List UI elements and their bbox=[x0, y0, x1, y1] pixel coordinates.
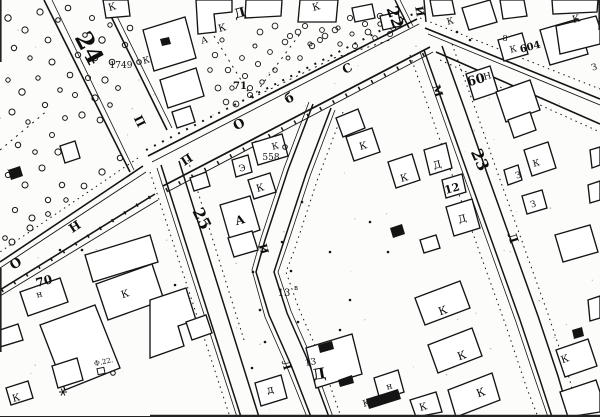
tree-dot-icon bbox=[339, 329, 342, 332]
tree-icon bbox=[22, 182, 28, 188]
map-label: П bbox=[131, 113, 149, 129]
tree-icon bbox=[39, 165, 45, 171]
speckle-dot bbox=[516, 211, 517, 212]
building-outline bbox=[588, 181, 600, 203]
tree-dot-icon bbox=[297, 321, 300, 324]
tree-icon bbox=[240, 56, 245, 61]
speckle-dot bbox=[166, 240, 167, 241]
tree-icon bbox=[27, 225, 33, 231]
speckle-dot bbox=[538, 300, 540, 302]
building-outline bbox=[160, 68, 204, 108]
speckle-dot bbox=[358, 65, 359, 66]
speckle-dot bbox=[35, 364, 36, 365]
speckle-dot bbox=[490, 348, 492, 350]
tree-icon bbox=[257, 29, 263, 35]
speckle-dot bbox=[521, 381, 522, 382]
map-label: И bbox=[412, 5, 427, 18]
tree-dot-icon bbox=[259, 309, 262, 312]
tree-dot-icon bbox=[369, 221, 372, 224]
tree-icon bbox=[253, 44, 257, 48]
tree-icon bbox=[5, 15, 11, 21]
tree-icon bbox=[302, 23, 307, 28]
tree-icon bbox=[73, 93, 78, 98]
speckle-dot bbox=[30, 373, 31, 374]
map-label: О bbox=[231, 116, 248, 135]
tree-icon bbox=[97, 117, 103, 123]
map-label: Н bbox=[66, 218, 83, 236]
speckle-dot bbox=[598, 87, 599, 88]
speckle-dot bbox=[266, 76, 267, 77]
speckle-dot bbox=[138, 79, 139, 80]
dotted-line bbox=[0, 110, 48, 150]
speckle-dot bbox=[550, 207, 552, 209]
speckle-dot bbox=[19, 25, 20, 26]
tree-icon bbox=[12, 207, 17, 212]
building-outline bbox=[60, 141, 80, 163]
tree-icon bbox=[347, 15, 352, 20]
building-outline bbox=[448, 373, 500, 417]
city-plan-map: 2422232512707117495586060413в13ДФ.22.8ПП… bbox=[0, 0, 600, 417]
map-label: 23 bbox=[467, 146, 493, 174]
tree-icon bbox=[362, 21, 367, 26]
tree-icon bbox=[212, 52, 217, 57]
map-label: М bbox=[429, 83, 445, 99]
tree-dot-icon bbox=[174, 284, 177, 287]
speckle-dot bbox=[457, 319, 458, 320]
tree-icon bbox=[233, 101, 239, 107]
tree-icon bbox=[298, 56, 303, 61]
speckle-dot bbox=[354, 218, 355, 219]
tree-icon bbox=[286, 56, 290, 60]
speckle-dot bbox=[475, 312, 476, 313]
tree-dot-icon bbox=[264, 341, 267, 344]
map-label: С bbox=[340, 60, 355, 77]
tree-dot-icon bbox=[81, 249, 84, 252]
speckle-dot bbox=[259, 344, 261, 346]
tree-icon bbox=[64, 198, 68, 202]
tree-icon bbox=[208, 68, 213, 73]
speckle-dot bbox=[38, 257, 39, 258]
tree-icon bbox=[63, 116, 68, 121]
tree-icon bbox=[223, 99, 229, 105]
map-label: 558 bbox=[262, 153, 279, 163]
tree-icon bbox=[9, 109, 15, 115]
building-outline bbox=[352, 4, 375, 22]
speckle-dot bbox=[83, 107, 84, 108]
building-outline bbox=[430, 0, 455, 16]
speckle-dot bbox=[493, 139, 494, 140]
tree-icon bbox=[33, 150, 38, 155]
tree-icon bbox=[255, 61, 260, 66]
speckle-dot bbox=[269, 409, 270, 410]
tree-icon bbox=[102, 77, 108, 83]
tree-icon bbox=[15, 142, 20, 147]
speckle-dot bbox=[268, 72, 270, 74]
speckle-dot bbox=[21, 141, 22, 142]
tree-icon bbox=[46, 212, 51, 217]
tree-icon bbox=[37, 9, 43, 15]
tree-icon bbox=[287, 33, 292, 38]
speckle-dot bbox=[415, 45, 417, 47]
map-label: К bbox=[446, 16, 455, 27]
tree-icon bbox=[36, 76, 40, 80]
map-canvas: 2422232512707117495586060413в13ДФ.22.8ПП… bbox=[0, 0, 600, 417]
tree-icon bbox=[79, 112, 85, 118]
speckle-dot bbox=[462, 84, 463, 85]
tree-icon bbox=[365, 29, 371, 35]
map-label: О bbox=[7, 255, 25, 274]
speckle-dot bbox=[554, 337, 556, 339]
building-outline bbox=[420, 235, 440, 253]
building-outline bbox=[172, 106, 195, 128]
tree-icon bbox=[56, 18, 61, 23]
tree-icon bbox=[59, 182, 64, 187]
shed-block bbox=[572, 327, 584, 339]
tree-icon bbox=[3, 236, 8, 241]
tree-icon bbox=[99, 169, 105, 175]
speckle-dot bbox=[122, 372, 123, 373]
tree-icon bbox=[127, 25, 133, 31]
speckle-dot bbox=[127, 134, 128, 135]
map-label: б bbox=[282, 90, 297, 107]
tree-icon bbox=[338, 42, 342, 46]
tree-icon bbox=[45, 37, 51, 43]
tree-icon bbox=[116, 86, 121, 91]
tree-icon bbox=[50, 133, 55, 138]
building-outline bbox=[190, 172, 210, 191]
tree-icon bbox=[268, 50, 273, 55]
building-outline bbox=[555, 225, 598, 262]
speckle-dot bbox=[0, 117, 1, 119]
tree-dot-icon bbox=[469, 39, 472, 42]
speckle-dot bbox=[72, 205, 73, 206]
tree-icon bbox=[22, 27, 28, 33]
speckle-dot bbox=[236, 327, 237, 328]
tree-icon bbox=[225, 67, 230, 72]
tree-icon bbox=[215, 85, 221, 91]
speckle-dot bbox=[473, 130, 475, 132]
map-label: Л bbox=[279, 359, 294, 372]
tree-icon bbox=[282, 39, 288, 45]
speckle-dot bbox=[566, 324, 567, 325]
map-label: З bbox=[590, 62, 598, 73]
tree-dot-icon bbox=[349, 299, 352, 302]
tree-icon bbox=[108, 103, 113, 108]
speckle-dot bbox=[334, 83, 335, 84]
map-label: А bbox=[200, 35, 209, 46]
speckle-dot bbox=[283, 231, 285, 233]
tree-icon bbox=[42, 102, 47, 107]
speckle-dot bbox=[186, 274, 187, 275]
map-label: 71 bbox=[233, 81, 247, 92]
tree-icon bbox=[247, 85, 252, 90]
building-outline bbox=[590, 147, 600, 168]
tree-dot-icon bbox=[329, 251, 332, 254]
speckle-dot bbox=[132, 108, 133, 109]
tree-dot-icon bbox=[290, 270, 293, 273]
tree-icon bbox=[65, 5, 71, 11]
dotted-line bbox=[334, 40, 390, 58]
building-outline bbox=[560, 380, 600, 417]
map-label: К bbox=[571, 13, 582, 26]
tree-icon bbox=[320, 28, 325, 33]
speckle-dot bbox=[344, 173, 345, 174]
speckle-dot bbox=[350, 271, 351, 272]
tree-icon bbox=[55, 149, 61, 155]
tree-icon bbox=[49, 59, 55, 65]
speckle-dot bbox=[504, 250, 505, 251]
map-label: в bbox=[294, 284, 298, 292]
tree-icon bbox=[108, 23, 112, 27]
tree-icon bbox=[272, 23, 278, 29]
tree-icon bbox=[6, 78, 10, 82]
building-outline bbox=[552, 0, 598, 14]
speckle-dot bbox=[446, 374, 448, 376]
speckle-dot bbox=[17, 29, 18, 30]
speckle-dot bbox=[305, 105, 306, 106]
building-outline bbox=[462, 0, 497, 30]
tree-dot-icon bbox=[251, 367, 254, 370]
map-label: 25 bbox=[189, 204, 216, 232]
speckle-dot bbox=[235, 263, 236, 264]
tree-icon bbox=[322, 33, 328, 39]
building-outline bbox=[500, 0, 527, 19]
building-outline bbox=[0, 324, 23, 347]
speckle-dot bbox=[592, 280, 593, 281]
map-label: 13 bbox=[278, 288, 291, 299]
shed-block bbox=[390, 224, 405, 238]
tree-icon bbox=[295, 29, 301, 35]
speckle-dot bbox=[386, 213, 387, 214]
tree-icon bbox=[19, 89, 25, 95]
speckle-dot bbox=[35, 47, 36, 48]
map-label: Л bbox=[505, 231, 522, 246]
building-outline bbox=[196, 0, 232, 34]
speckle-dot bbox=[509, 251, 510, 252]
map-label: И bbox=[256, 242, 271, 256]
speckle-dot bbox=[177, 188, 178, 189]
tree-icon bbox=[318, 38, 323, 43]
tree-icon bbox=[67, 72, 73, 78]
building-outline bbox=[245, 0, 282, 18]
tree-dot-icon bbox=[59, 249, 62, 252]
tree-icon bbox=[260, 80, 264, 84]
shed-block bbox=[8, 166, 23, 180]
speckle-dot bbox=[489, 98, 490, 99]
tree-icon bbox=[29, 215, 35, 221]
map-label: К bbox=[217, 22, 228, 35]
speckle-dot bbox=[591, 130, 592, 131]
dotted-line bbox=[252, 58, 334, 98]
speckle-dot bbox=[559, 103, 560, 104]
speckle-dot bbox=[481, 61, 482, 62]
tree-dot-icon bbox=[387, 251, 390, 254]
speckle-dot bbox=[465, 151, 466, 152]
tree-icon bbox=[58, 88, 63, 93]
tree-icon bbox=[90, 16, 95, 21]
map-label: 1749 bbox=[110, 61, 133, 71]
speckle-dot bbox=[153, 94, 154, 95]
building-outline bbox=[524, 142, 556, 176]
speckle-dot bbox=[96, 249, 97, 250]
tree-icon bbox=[220, 38, 224, 42]
tree-icon bbox=[11, 45, 16, 50]
map-label: 8 bbox=[502, 34, 507, 43]
building-outline bbox=[588, 296, 600, 321]
speckle-dot bbox=[413, 366, 414, 367]
tree-icon bbox=[81, 183, 87, 189]
tree-icon bbox=[45, 197, 50, 202]
tree-icon bbox=[26, 120, 30, 124]
speckle-dot bbox=[212, 114, 213, 115]
speckle-dot bbox=[364, 319, 365, 320]
tree-icon bbox=[242, 73, 247, 78]
tree-icon bbox=[350, 32, 354, 36]
